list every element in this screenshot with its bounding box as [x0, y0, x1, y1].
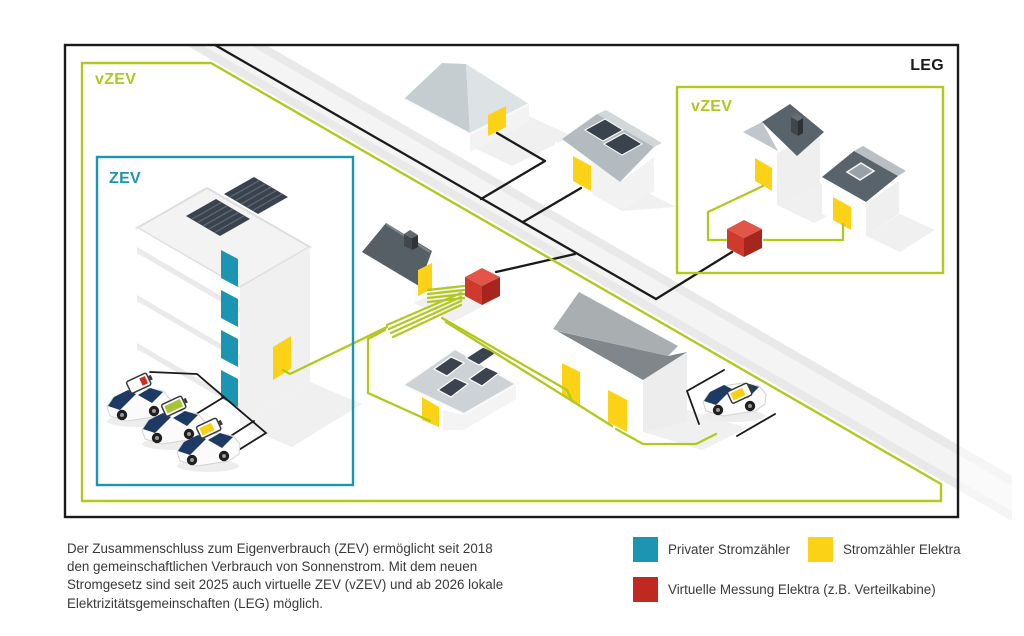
- leg-label: LEG: [910, 57, 944, 74]
- legend-label: Privater Stromzähler: [668, 542, 790, 557]
- caption-line: den gemeinschaftlichen Verbrauch von Son…: [67, 558, 612, 576]
- isometric-scene: vZEV ZEV vZEV LEG: [0, 0, 1024, 532]
- legend-label: Stromzähler Elektra: [843, 542, 961, 557]
- legend-item-elektra-meter: Stromzähler Elektra: [808, 537, 961, 562]
- legend-swatch-red: [633, 577, 658, 602]
- legend-item-virtual-meter: Virtuelle Messung Elektra (z.B. Verteilk…: [633, 577, 936, 602]
- apartment-building: [137, 177, 310, 425]
- zev-label: ZEV: [109, 170, 141, 187]
- legend-swatch-yellow: [808, 537, 833, 562]
- infographic-zev-vzev-leg: vZEV ZEV vZEV LEG Der Zusammenschluss zu…: [0, 0, 1024, 636]
- caption-line: Stromgesetz sind seit 2025 auch virtuell…: [67, 576, 612, 594]
- caption-line: Elektrizitätsgemeinschaften (LEG) möglic…: [67, 595, 612, 613]
- right-cube-cable: [656, 252, 732, 299]
- middle-cube-cable: [496, 254, 575, 272]
- legend-swatch-teal: [633, 537, 658, 562]
- caption-text: Der Zusammenschluss zum Eigenverbrauch (…: [67, 540, 612, 613]
- vzev-right-label: vZEV: [691, 98, 732, 115]
- chimney: [404, 230, 418, 250]
- caption-line: Der Zusammenschluss zum Eigenverbrauch (…: [67, 540, 612, 558]
- chimney-house: [362, 223, 449, 303]
- vzev-wire-house2: [764, 224, 843, 240]
- legend-item-private-meter: Privater Stromzähler: [633, 537, 790, 562]
- vzev-left-label: vZEV: [95, 71, 136, 88]
- legend-label: Virtuelle Messung Elektra (z.B. Verteilk…: [668, 582, 936, 597]
